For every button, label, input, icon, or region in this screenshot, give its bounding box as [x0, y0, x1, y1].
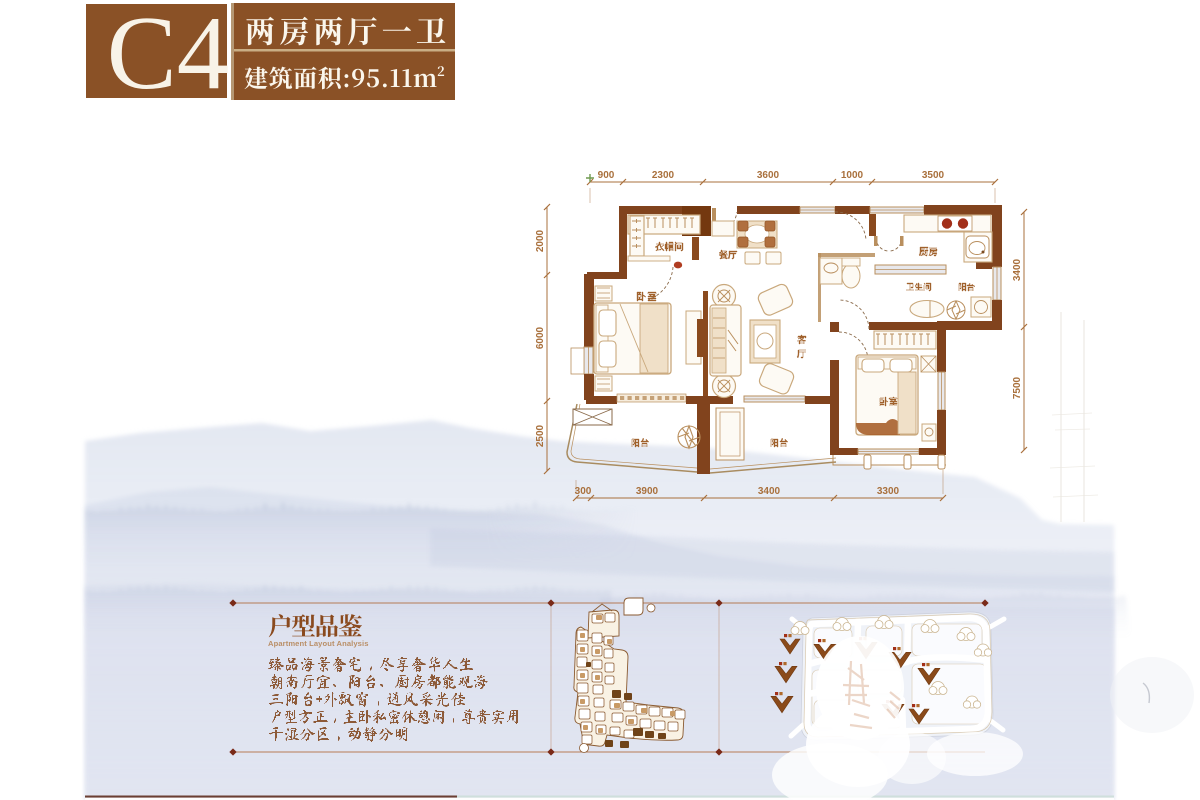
svg-text:3400: 3400 [758, 486, 781, 497]
svg-text:1000: 1000 [841, 170, 864, 181]
svg-text:900: 900 [598, 170, 615, 181]
svg-text:2500: 2500 [535, 424, 546, 447]
svg-text:3400: 3400 [1012, 258, 1023, 281]
svg-text:3600: 3600 [757, 170, 780, 181]
svg-text:7500: 7500 [1012, 376, 1023, 399]
svg-text:C4: C4 [107, 0, 230, 111]
svg-text:2300: 2300 [652, 170, 675, 181]
svg-text:2000: 2000 [535, 229, 546, 252]
svg-text:Apartment Layout Analysis: Apartment Layout Analysis [268, 639, 369, 648]
svg-text:3500: 3500 [922, 170, 945, 181]
svg-text:300: 300 [575, 486, 592, 497]
svg-text:6000: 6000 [535, 326, 546, 349]
svg-text:3900: 3900 [636, 486, 659, 497]
svg-text:3300: 3300 [877, 486, 900, 497]
